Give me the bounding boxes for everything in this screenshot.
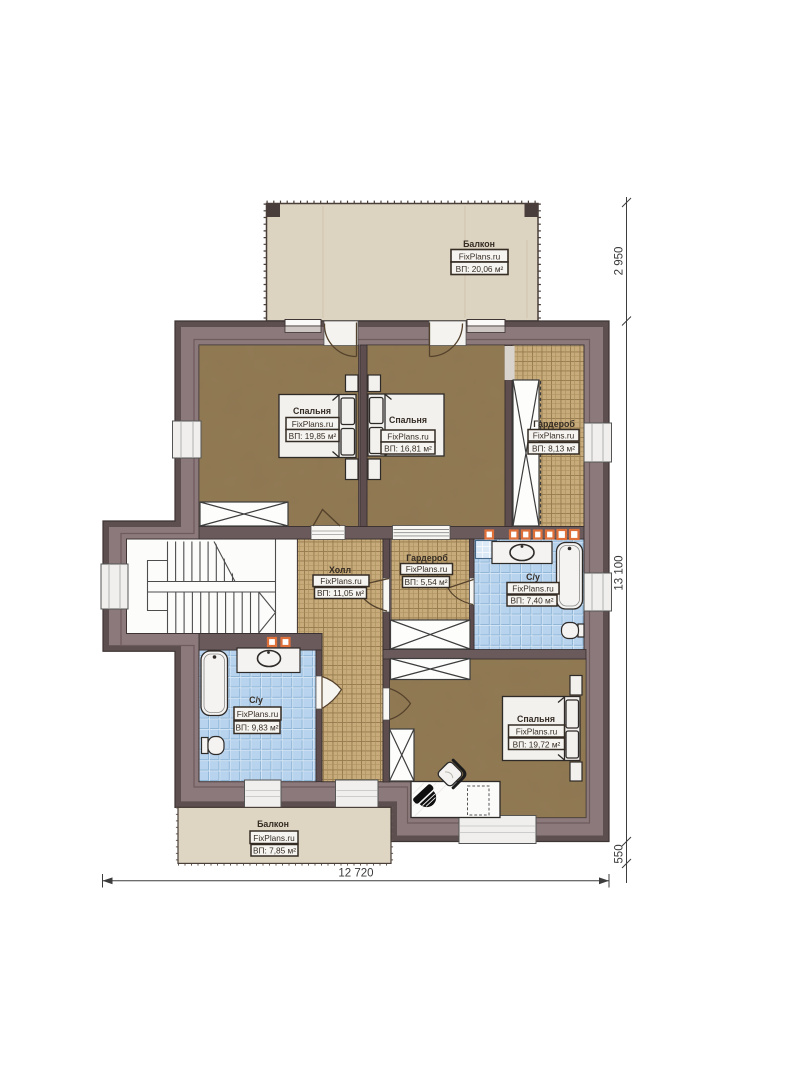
svg-text:ВП: 19,72 м²: ВП: 19,72 м² xyxy=(513,740,561,750)
svg-text:ВП: 11,05 м²: ВП: 11,05 м² xyxy=(317,588,364,598)
svg-text:ВП: 7,40 м²: ВП: 7,40 м² xyxy=(510,596,553,606)
svg-text:FixPlans.ru: FixPlans.ru xyxy=(237,709,279,719)
svg-text:Спальня: Спальня xyxy=(517,714,555,724)
svg-text:Спальня: Спальня xyxy=(389,415,427,425)
svg-text:Балкон: Балкон xyxy=(463,239,495,249)
svg-text:ВП: 9,83 м²: ВП: 9,83 м² xyxy=(235,723,278,733)
svg-text:ВП: 7,85 м²: ВП: 7,85 м² xyxy=(253,846,296,856)
svg-text:ВП: 5,54 м²: ВП: 5,54 м² xyxy=(404,577,447,587)
svg-text:ВП: 8,13 м²: ВП: 8,13 м² xyxy=(532,444,575,454)
svg-text:С/у: С/у xyxy=(526,572,540,582)
svg-text:FixPlans.ru: FixPlans.ru xyxy=(387,432,429,442)
svg-text:12 720: 12 720 xyxy=(338,868,373,880)
svg-text:Балкон: Балкон xyxy=(257,819,289,829)
svg-text:550: 550 xyxy=(614,844,626,863)
svg-text:FixPlans.ru: FixPlans.ru xyxy=(459,252,501,262)
svg-text:FixPlans.ru: FixPlans.ru xyxy=(253,833,295,843)
svg-text:ВП: 20,06 м²: ВП: 20,06 м² xyxy=(456,264,504,274)
svg-text:FixPlans.ru: FixPlans.ru xyxy=(320,576,362,586)
svg-text:FixPlans.ru: FixPlans.ru xyxy=(406,564,448,574)
svg-text:ВП: 19,85 м²: ВП: 19,85 м² xyxy=(289,431,337,441)
svg-text:FixPlans.ru: FixPlans.ru xyxy=(533,431,575,441)
svg-text:С/у: С/у xyxy=(249,695,263,705)
svg-text:2 950: 2 950 xyxy=(614,247,626,276)
svg-text:FixPlans.ru: FixPlans.ru xyxy=(512,584,554,594)
svg-text:Гардероб: Гардероб xyxy=(406,553,448,563)
svg-text:13 100: 13 100 xyxy=(614,555,626,590)
svg-text:Гардероб: Гардероб xyxy=(533,419,575,429)
svg-text:Спальня: Спальня xyxy=(293,406,331,416)
svg-text:FixPlans.ru: FixPlans.ru xyxy=(516,727,558,737)
svg-text:Холл: Холл xyxy=(329,565,351,575)
svg-text:FixPlans.ru: FixPlans.ru xyxy=(292,419,334,429)
svg-text:ВП: 16,81 м²: ВП: 16,81 м² xyxy=(384,444,432,454)
